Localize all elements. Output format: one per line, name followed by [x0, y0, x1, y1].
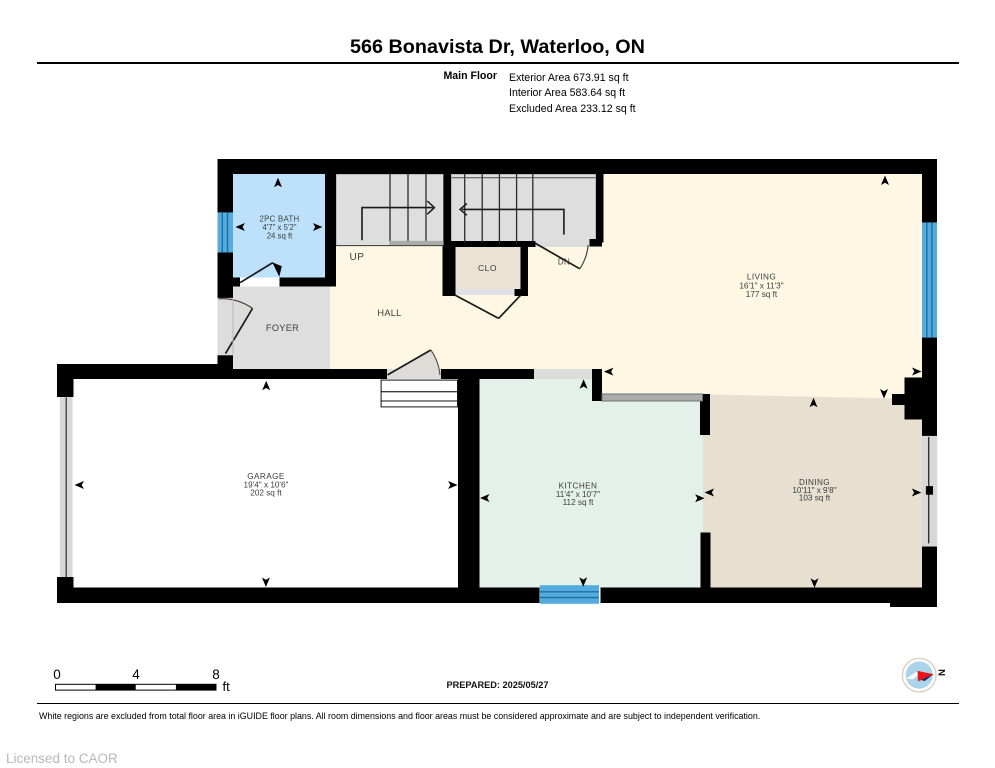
- svg-text:N: N: [936, 669, 947, 676]
- svg-text:177 sq ft: 177 sq ft: [746, 290, 778, 299]
- svg-text:CLO: CLO: [478, 263, 497, 273]
- svg-text:HALL: HALL: [377, 308, 401, 318]
- svg-text:DN: DN: [558, 257, 570, 266]
- svg-text:LIVING: LIVING: [747, 273, 776, 282]
- svg-text:24 sq ft: 24 sq ft: [267, 231, 293, 240]
- svg-text:202 sq ft: 202 sq ft: [250, 489, 282, 498]
- svg-text:GARAGE: GARAGE: [247, 472, 285, 481]
- svg-text:112 sq ft: 112 sq ft: [563, 498, 595, 507]
- svg-text:UP: UP: [350, 252, 365, 263]
- svg-text:103 sq ft: 103 sq ft: [799, 494, 831, 503]
- svg-text:FOYER: FOYER: [266, 323, 299, 333]
